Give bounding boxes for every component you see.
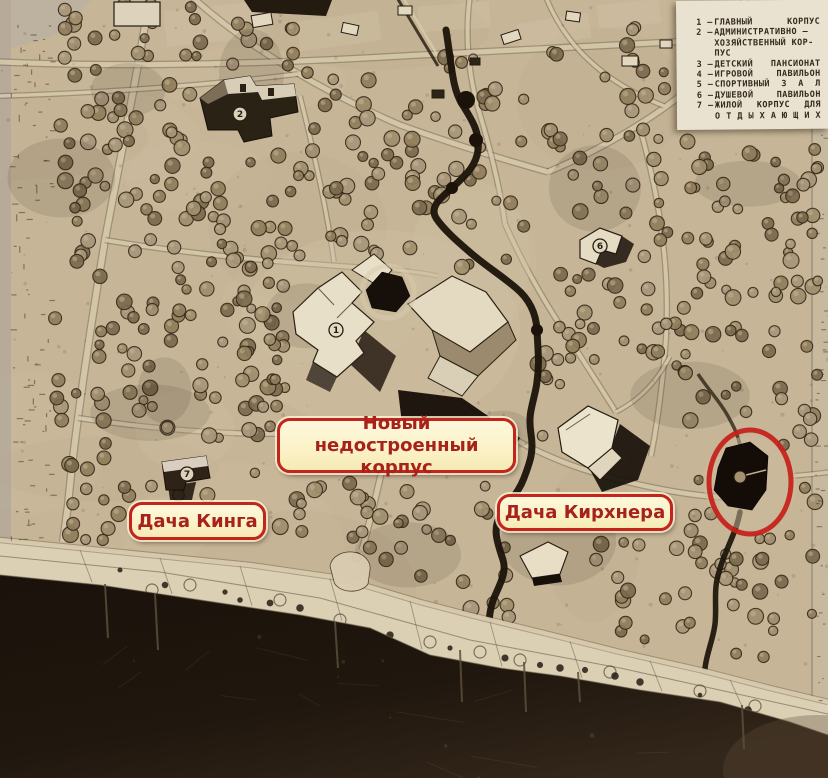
site-plan-photo: 1267 1 –ГЛАВНЫЙ КОРПУС2 –АДМИНИСТРАТИВНО… (0, 0, 828, 778)
legend-text: 1 –ГЛАВНЫЙ КОРПУС2 –АДМИНИСТРАТИВНО –ХОЗ… (676, 0, 828, 122)
callout-dacha-king: Дача Кинга (129, 502, 266, 540)
callout-new-unfinished-building: Новый недостроенный корпус (277, 418, 516, 473)
pond-island (734, 471, 746, 483)
callout-dacha-kirchner: Дача Кирхнера (497, 494, 673, 531)
svg-text:6: 6 (597, 242, 603, 252)
svg-text:7: 7 (184, 470, 190, 480)
svg-text:1: 1 (333, 326, 339, 336)
svg-text:2: 2 (237, 110, 243, 120)
legend-panel: 1 –ГЛАВНЫЙ КОРПУС2 –АДМИНИСТРАТИВНО –ХОЗ… (676, 0, 828, 130)
legend-line: О Т Д Ы Х А Ю Щ И Х (697, 110, 821, 121)
